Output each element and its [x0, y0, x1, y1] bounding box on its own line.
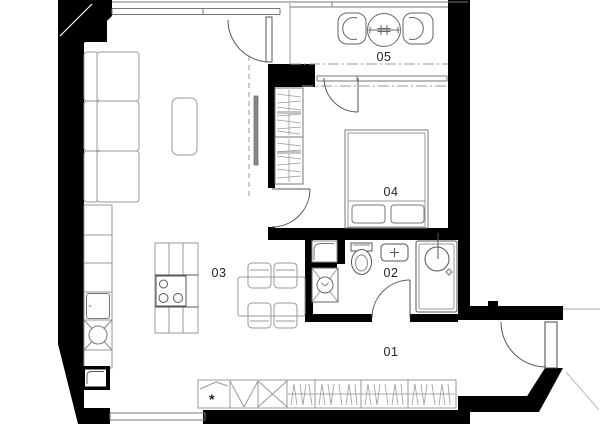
sink-basin-icon	[381, 244, 408, 261]
floor-plan: 01 02 03 04 05 *	[0, 0, 600, 426]
room-label-bedroom: 04	[383, 185, 398, 199]
room-label-living: 03	[211, 266, 226, 280]
dining-chair	[248, 263, 271, 288]
entrance-door	[501, 322, 557, 368]
hall-wardrobe	[198, 380, 456, 408]
sofa	[84, 52, 139, 202]
toilet-icon	[351, 243, 372, 275]
balcony-furniture	[338, 13, 433, 47]
neighbour-line-diagonal	[566, 372, 599, 410]
living-balcony-door	[228, 17, 272, 62]
pillow	[352, 205, 385, 223]
wall-bathroom-divider	[311, 262, 337, 268]
bedroom-wardrobe	[275, 88, 303, 184]
balcony-table	[368, 14, 401, 47]
tv	[254, 96, 258, 165]
coffee-table	[172, 98, 197, 155]
bathroom-door	[372, 280, 410, 318]
balcony-chair	[403, 13, 433, 44]
room-label-bathroom: 02	[383, 266, 398, 280]
room-label-hallway: 01	[383, 345, 398, 359]
wall-hall-top	[458, 306, 563, 320]
wall-bottom	[203, 410, 470, 424]
wall-column	[85, 20, 107, 42]
kitchen-island	[155, 243, 198, 333]
wall-bedroom-left-upper	[268, 87, 275, 188]
wall-bedroom-bathroom	[268, 228, 458, 240]
shower-cabin-icon	[416, 233, 457, 312]
wall-bathroom-stub	[337, 240, 345, 264]
dining-chair	[274, 263, 297, 288]
wall-bathroom-bottom-right	[410, 314, 458, 322]
room-label-balcony: 05	[376, 50, 391, 64]
wall-nub	[488, 301, 498, 306]
bedroom-balcony-door	[324, 78, 358, 112]
wall-top-middle	[268, 64, 315, 87]
kitchen-counter	[84, 205, 112, 368]
wall-bottom-right	[458, 396, 530, 412]
bedroom-door	[272, 189, 310, 227]
dining-set	[238, 263, 305, 328]
pillow	[391, 205, 424, 223]
kitchen-cabinet-unit	[82, 366, 110, 390]
wall-bathroom-bottom-left	[305, 314, 372, 322]
washing-machine-icon	[312, 268, 338, 302]
balcony-chair	[338, 13, 366, 44]
shoe-cabinet-star: *	[209, 391, 215, 407]
bed	[345, 130, 428, 228]
shower-tray-icon	[312, 241, 337, 262]
